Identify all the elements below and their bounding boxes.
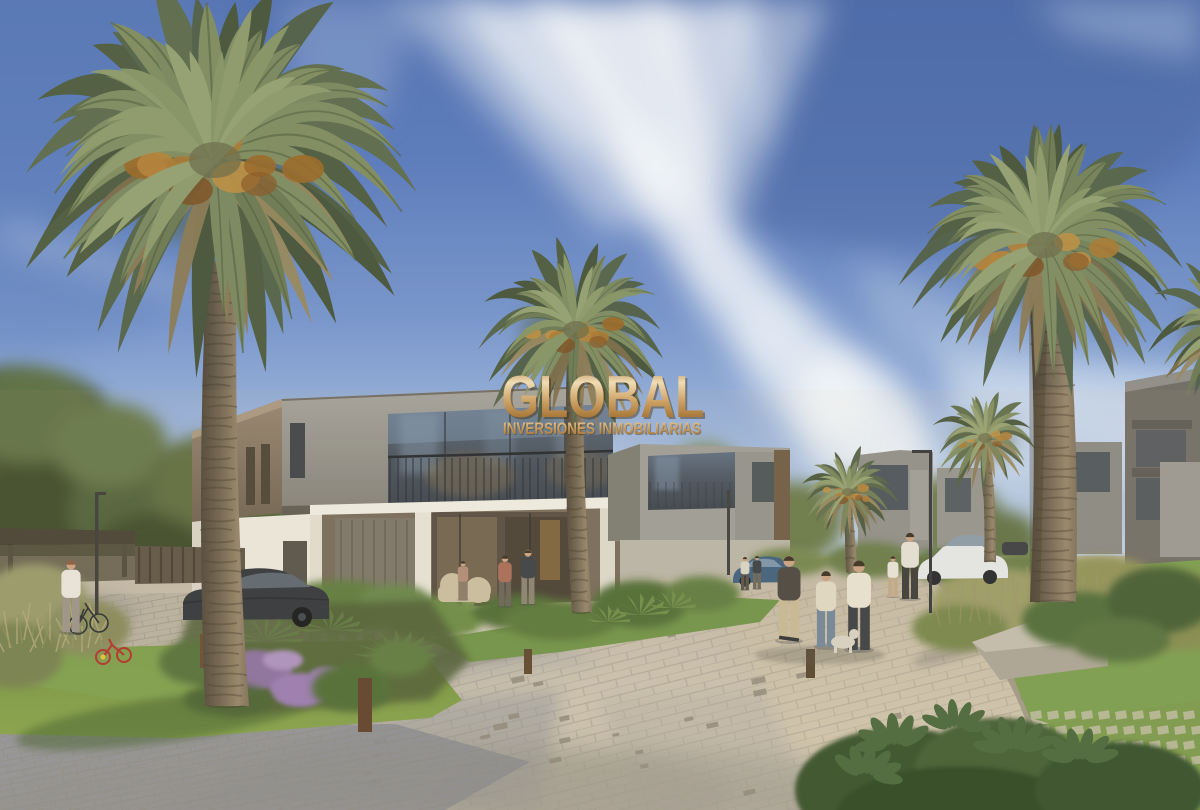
svg-text:INVERSIONES INMOBILIARIAS: INVERSIONES INMOBILIARIAS xyxy=(503,419,701,438)
